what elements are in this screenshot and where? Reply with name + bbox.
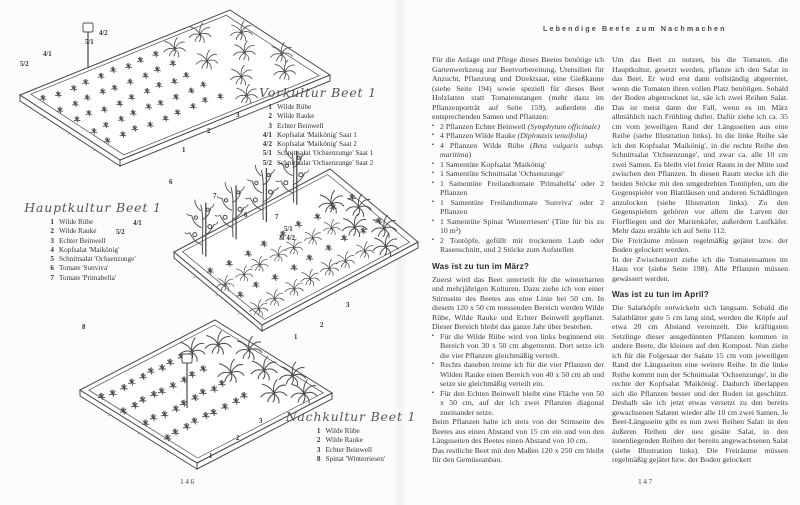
march-paragraph: Zuerst wird das Beet unterteilt für die … (432, 275, 604, 332)
supply-item: 1 Samentüte Spinat 'Winterriesen' (Tüte … (432, 217, 604, 236)
bed-annotation: 2 (207, 128, 210, 135)
supply-item: 1 Samentüte Freilandtomate 'Sunviva' ode… (432, 198, 604, 217)
list-item: 4/1Kopfsalat 'Maikönig' Saat 1 (263, 131, 373, 140)
bed-annotation: 5/1 (284, 226, 293, 233)
list-item: 7Tomate 'Primabella' (50, 274, 135, 283)
supply-item: 2 Pflanzen Echter Beinwell (Symphytum of… (432, 122, 604, 132)
list-item: 1Wilde Rübe (317, 427, 385, 436)
supply-item: 4 Pflanzen Wilde Rübe (Beta vulgaris sub… (432, 141, 604, 160)
section-heading-march: Was ist zu tun im März? (432, 262, 604, 272)
list-item: 5/1Schnittsalat 'Ochsenzunge' Saat 1 (263, 149, 373, 158)
list-item: 6Tomate 'Sunviva' (50, 264, 135, 273)
march-step: Für den Echten Beinwell bleibt eine Fläc… (432, 389, 604, 418)
bed-annotation: 8 (82, 324, 85, 331)
bed-annotation: & 4/2 (279, 235, 295, 242)
supply-item: 1 Samentüte Kopfsalat 'Maikönig' (432, 160, 604, 170)
bed-annotation: 1 (294, 334, 297, 341)
bed-annotation: 7 (275, 214, 278, 221)
supply-item: 4 Pflanzen Wilde Rauke (Diplotaxis tenui… (432, 131, 604, 141)
book-spread: Vorkultur Beet 1 1Wilde Rübe 2Wilde Rauk… (0, 0, 800, 505)
list-item: 3Echter Beinwell (263, 122, 373, 131)
text-column-left: Für die Anlage und Pflege dieses Beetes … (432, 55, 604, 465)
list-item: 5Schnittsalat 'Ochsenzunge' (50, 255, 135, 264)
list-item: 4Kopfsalat 'Maikönig' (50, 246, 135, 255)
bed-annotation: 1 (209, 453, 212, 460)
bed-annotation: 5/2 (116, 229, 125, 236)
supplies-list: 2 Pflanzen Echter Beinwell (Symphytum of… (432, 122, 604, 255)
usage-paragraph: Um das Beet zu nutzen, bis die Tomaten, … (612, 55, 788, 236)
hauptkultur-caption: Hauptkultur Beet 1 1Wilde Rübe 2Wilde Ra… (8, 201, 178, 283)
bed-title-vorkultur: Vorkultur Beet 1 (248, 86, 388, 100)
bed-title-hauptkultur: Hauptkultur Beet 1 (8, 201, 178, 215)
intro-paragraph: Für die Anlage und Pflege dieses Beetes … (432, 55, 604, 122)
bed-annotation: 3 (259, 418, 262, 425)
list-item: 2Wilde Rauke (317, 436, 385, 445)
list-item: 2Wilde Rauke (263, 112, 373, 121)
bed-annotation: 5/1 (85, 39, 94, 46)
list-item: 5/2Schnittsalat 'Ochsenzunge' Saat 2 (263, 159, 373, 168)
march-note-2: Das restliche Beet mit den Maßen 120 x 2… (432, 446, 604, 465)
section-heading-april: Was ist zu tun im April? (612, 290, 788, 300)
bed-annotation: 4/1 (43, 51, 52, 58)
vorkultur-caption: Vorkultur Beet 1 1Wilde Rübe 2Wilde Rauk… (248, 86, 388, 168)
nachkultur-plant-list: 1Wilde Rübe 2Wilde Rauke 3Echter Beinwel… (317, 427, 385, 464)
bed-annotation: 6 (169, 179, 172, 186)
list-item: 3Echter Beinwell (317, 446, 385, 455)
page-number-right: 147 (638, 477, 654, 486)
hauptkultur-plant-list: 1Wilde Rübe 2Wilde Rauke 3Echter Beinwel… (50, 218, 135, 283)
weeding-paragraph: Die Freiräume müssen regelmäßig gejätet … (612, 236, 788, 255)
page-left: Vorkultur Beet 1 1Wilde Rübe 2Wilde Rauk… (0, 0, 400, 505)
list-item: 1Wilde Rübe (50, 218, 135, 227)
supply-item: 1 Samentüte Schnittsalat 'Ochsenzunge' (432, 169, 604, 179)
running-title: Lebendige Beete zum Nachmachen (543, 24, 753, 33)
bed-annotation: 4/1 (133, 220, 142, 227)
text-column-right: Um das Beet zu nutzen, bis die Tomaten, … (612, 55, 788, 465)
supply-item: 1 Samentüte Freilandtomate 'Primabella' … (432, 179, 604, 198)
bed-annotation: 1 (182, 147, 185, 154)
march-step: Rechts daneben trenne ich für die vier P… (432, 360, 604, 389)
vorkultur-plant-list: 1Wilde Rübe 2Wilde Rauke 3Echter Beinwel… (263, 103, 373, 168)
march-step: Für die Wilde Rübe wird von links beginn… (432, 332, 604, 361)
list-item: 8Spinat 'Winterriesen' (317, 455, 385, 464)
list-item: 3Echter Beinwell (50, 237, 135, 246)
bed-annotation: 6 (244, 212, 247, 219)
bed-annotation: 2 (320, 322, 323, 329)
list-item: 4/2Kopfsalat 'Maikönig' Saat 2 (263, 140, 373, 149)
bed-annotation: 2 (236, 435, 239, 442)
page-right: Lebendige Beete zum Nachmachen Für die A… (400, 0, 800, 505)
bed-annotation: 4/2 (99, 30, 108, 37)
tomato-paragraph: In der Zwischenzeit ziehe ich die Tomate… (612, 255, 788, 284)
supply-item: 2 Tontöpfe, gefüllt mit trockenem Laub o… (432, 236, 604, 255)
march-steps-list: Für die Wilde Rübe wird von links beginn… (432, 332, 604, 418)
bed-annotation: 3 (236, 112, 239, 119)
april-paragraph: Die Salatköpfe entwickeln sich langsam. … (612, 303, 788, 465)
bed-annotation: 5/2 (20, 61, 29, 68)
bed-annotation: 7 (213, 193, 216, 200)
list-item: 1Wilde Rübe (263, 103, 373, 112)
page-number-left: 146 (180, 477, 196, 486)
bed-annotation: 3 (346, 302, 349, 309)
march-note: Beim Pflanzen halte ich stets von der St… (432, 417, 604, 446)
